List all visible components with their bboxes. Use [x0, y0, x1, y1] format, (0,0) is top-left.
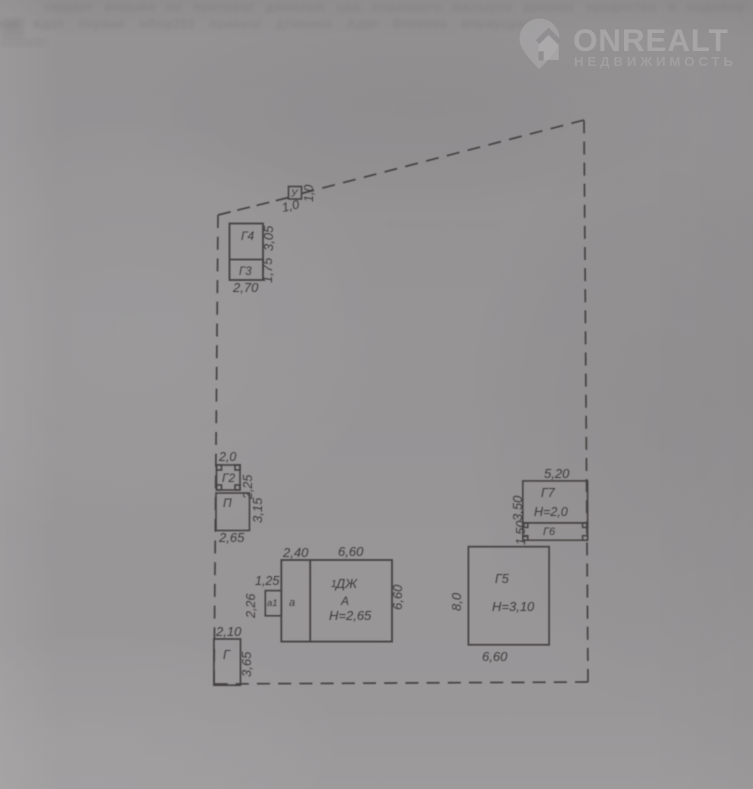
svg-text:Г: Г [223, 648, 231, 662]
svg-text:5,20: 5,20 [544, 466, 570, 481]
svg-text:2,10: 2,10 [215, 624, 242, 639]
svg-text:Г2: Г2 [222, 471, 236, 485]
svg-text:Н=2,65: Н=2,65 [329, 608, 372, 623]
svg-text:иэя вдот первая мблр202 правео: иэя вдот первая мблр202 правеог дтивнем … [0, 17, 536, 31]
svg-text:1,25: 1,25 [255, 574, 279, 588]
svg-text:2,25: 2,25 [241, 475, 255, 500]
svg-text:6,60: 6,60 [482, 649, 508, 664]
svg-text:Н=2,0: Н=2,0 [534, 505, 568, 519]
svg-text:3,05: 3,05 [261, 225, 276, 251]
svg-text:тмщаот инвыиэ по приговцт двми: тмщаот инвыиэ по приговцт двмизыя цяв оп… [44, 0, 753, 14]
svg-text:ДЖ: ДЖ [334, 576, 358, 591]
svg-text:3,50: 3,50 [510, 495, 525, 521]
svg-text:1,50: 1,50 [514, 521, 528, 545]
svg-text:Г5: Г5 [495, 572, 509, 586]
svg-text:НЕДВИЖИМОСТЬ: НЕДВИЖИМОСТЬ [574, 54, 737, 69]
svg-text:Г6: Г6 [543, 526, 556, 538]
svg-text:Г3: Г3 [239, 266, 252, 278]
svg-text:1,75: 1,75 [260, 257, 275, 283]
svg-text:6,60: 6,60 [390, 584, 405, 610]
svg-text:А: А [340, 594, 349, 608]
svg-text:П: П [223, 496, 232, 510]
svg-text:Н=3,10: Н=3,10 [492, 599, 535, 614]
svg-text:8,0: 8,0 [449, 592, 464, 611]
svg-text:6,60: 6,60 [338, 544, 364, 559]
svg-text:2,26: 2,26 [244, 594, 258, 619]
svg-text:Г4: Г4 [241, 229, 255, 243]
svg-text:Г7: Г7 [541, 486, 556, 500]
svg-text:3,15: 3,15 [250, 497, 265, 523]
svg-text:1,0: 1,0 [302, 185, 316, 202]
svg-text:а1: а1 [267, 598, 278, 609]
svg-text:2,70: 2,70 [232, 280, 259, 295]
svg-text:К договору продажи: К договору продажи [388, 218, 501, 232]
svg-text:2,65: 2,65 [218, 530, 245, 545]
svg-text:2,0: 2,0 [218, 450, 236, 464]
svg-text:3,65: 3,65 [239, 651, 254, 677]
svg-text:ONREALT: ONREALT [573, 22, 729, 58]
svg-text:а: а [289, 597, 295, 609]
svg-text:2,40: 2,40 [282, 545, 309, 560]
